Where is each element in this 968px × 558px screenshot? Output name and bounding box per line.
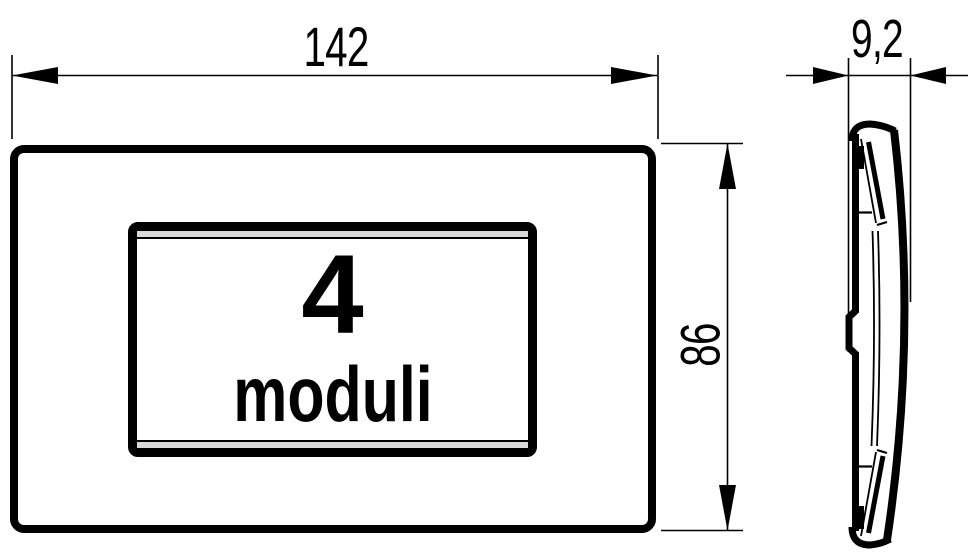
height-dimension-label: 86 (668, 323, 733, 366)
side-profile (849, 124, 904, 545)
depth-dimension-lines (786, 58, 968, 352)
drawing-linework (0, 0, 968, 558)
technical-drawing: 4 moduli (0, 0, 968, 558)
depth-dimension-label: 9,2 (851, 8, 903, 70)
width-dimension-label: 142 (303, 14, 368, 79)
